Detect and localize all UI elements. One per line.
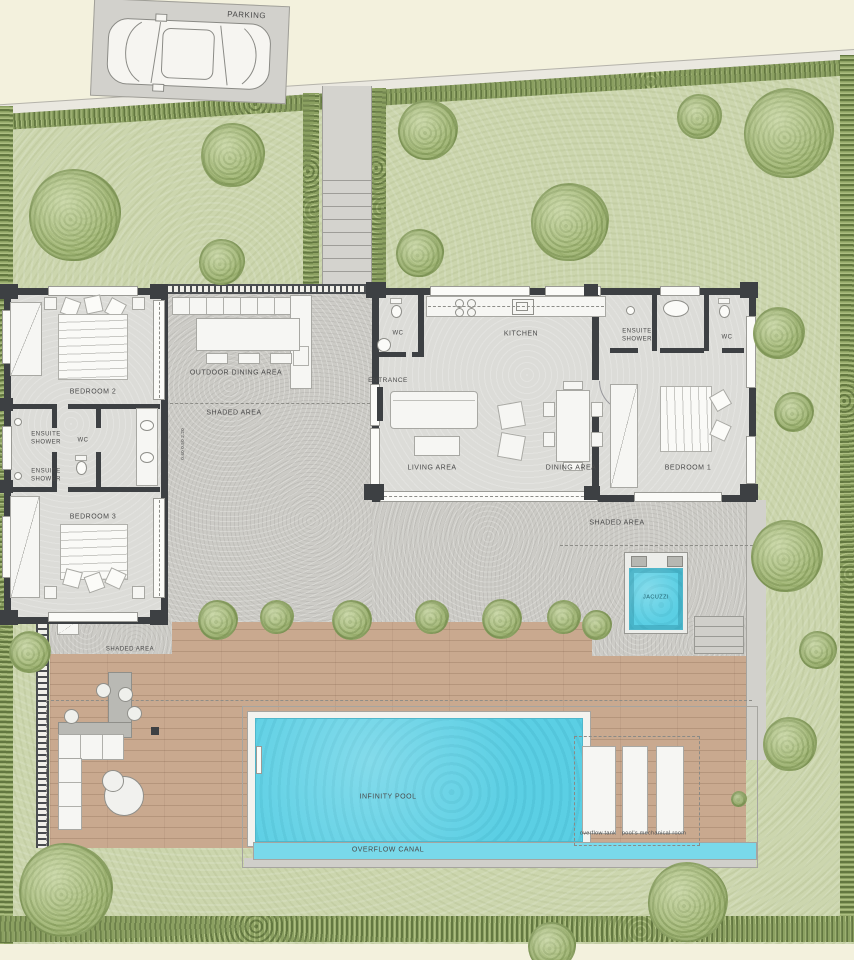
shaded-area-dash xyxy=(560,545,758,546)
armchair xyxy=(497,432,526,461)
shower-head xyxy=(14,418,22,426)
hedge-walkway-right xyxy=(372,88,386,288)
entrance-label: ENTRANCE xyxy=(368,377,408,385)
kitchen-label: KITCHEN xyxy=(504,331,538,340)
deck-dashed-line xyxy=(46,700,752,701)
partition xyxy=(9,404,53,409)
entrance-door-leaf xyxy=(377,387,383,421)
toilet-tank xyxy=(390,298,402,304)
toilet-tank xyxy=(718,298,730,304)
nightstand xyxy=(132,297,145,310)
stove-burner xyxy=(467,308,476,317)
bar-stool xyxy=(64,709,79,724)
window xyxy=(660,286,700,296)
jacuzzi-headrest xyxy=(667,556,683,567)
dining-area-label: DINING AREA xyxy=(546,465,597,474)
wc-label: WC xyxy=(393,330,404,338)
pillow xyxy=(83,294,103,314)
column xyxy=(740,484,758,500)
jacuzzi-label: JACUZZI xyxy=(643,595,669,602)
overflow-tank-label: overflow tank xyxy=(576,831,620,838)
living-area-label: LIVING AREA xyxy=(407,465,456,474)
outdoor-sofa-vertical xyxy=(58,758,82,830)
basin xyxy=(140,420,154,431)
window xyxy=(370,428,380,488)
nightstand xyxy=(132,586,145,599)
partition xyxy=(9,487,53,492)
chair xyxy=(238,353,260,364)
pool-ladder xyxy=(256,746,262,774)
basin xyxy=(140,452,154,463)
wc-label: WC xyxy=(78,437,89,445)
ensuite-shower-label: ENSUITE SHOWER xyxy=(613,329,661,344)
window xyxy=(48,612,138,622)
basin xyxy=(663,300,689,317)
partition xyxy=(96,452,101,492)
ensuite-shower-label: ENSUITE SHOWER xyxy=(23,432,69,447)
column xyxy=(740,282,758,298)
bed xyxy=(660,386,712,452)
entry-walkway xyxy=(322,86,372,170)
ensuite-shower-label: ENSUITE SHOWER xyxy=(23,469,69,484)
window xyxy=(2,426,12,470)
armchair xyxy=(497,401,526,430)
sliding-glass-dash xyxy=(384,496,594,497)
wardrobe xyxy=(10,496,40,598)
hedge-walkway-left xyxy=(303,93,319,289)
hedge-bottom xyxy=(0,916,854,942)
window xyxy=(634,492,722,502)
partition xyxy=(412,352,424,357)
chair xyxy=(563,381,583,390)
jacuzzi-headrest xyxy=(631,556,647,567)
chair xyxy=(591,432,603,447)
wardrobe xyxy=(10,302,42,376)
car-icon xyxy=(103,11,274,96)
partition xyxy=(96,404,101,428)
outdoor-sofa-horizontal xyxy=(58,734,124,760)
sliding-glass-dash xyxy=(159,500,160,596)
chair xyxy=(543,432,555,447)
partition xyxy=(660,348,704,353)
parking-label: PARKING xyxy=(227,10,266,22)
partition xyxy=(68,487,160,492)
shaded-area-label: SHADED AREA xyxy=(206,410,261,419)
entry-stairs xyxy=(322,168,372,296)
partition xyxy=(722,348,744,353)
floor-plan: PARKING xyxy=(0,0,854,960)
bar-stool xyxy=(127,706,142,721)
stove-burner xyxy=(467,299,476,308)
nightstand xyxy=(44,586,57,599)
window-dimension-note: 0.40 0.50 2.20 xyxy=(180,428,186,460)
chair xyxy=(206,353,228,364)
bedroom3-label: BEDROOM 3 xyxy=(70,514,117,523)
column xyxy=(366,282,386,298)
chair xyxy=(270,353,292,364)
wc-label: WC xyxy=(722,334,733,342)
sofa xyxy=(390,391,478,429)
deck-dashed-line-v xyxy=(46,700,47,846)
partition xyxy=(52,404,57,428)
column xyxy=(0,284,18,299)
wardrobe xyxy=(610,384,638,488)
pergola-post xyxy=(151,727,159,735)
hedge-right xyxy=(840,55,854,920)
sofa-back-line xyxy=(393,400,475,401)
nightstand xyxy=(44,297,57,310)
shaded-area-label: SHADED AREA xyxy=(106,646,154,654)
infinity-pool-label: INFINITY POOL xyxy=(360,794,417,803)
outdoor-counter-seats xyxy=(172,297,294,315)
chair xyxy=(591,402,603,417)
window xyxy=(746,436,756,484)
basin xyxy=(377,338,391,352)
bar-stool xyxy=(118,687,133,702)
coffee-table xyxy=(414,436,460,456)
bar-stool xyxy=(96,683,111,698)
pergola-edge xyxy=(168,284,372,294)
outdoor-dining-table xyxy=(196,318,300,351)
bed xyxy=(58,314,128,380)
column xyxy=(0,610,18,625)
column xyxy=(150,610,168,625)
kitchen-sink-basin xyxy=(516,302,528,311)
pool-mechanical-room-label: pool's mechanical room xyxy=(619,831,689,838)
partition xyxy=(418,295,424,357)
chair xyxy=(543,402,555,417)
round-table-small xyxy=(102,770,124,792)
column xyxy=(364,484,384,500)
partition xyxy=(374,352,406,357)
bedroom2-label: BEDROOM 2 xyxy=(70,389,117,398)
mechanical-dashed-outline xyxy=(574,736,700,846)
shaded-area-label: SHADED AREA xyxy=(589,520,644,529)
partition xyxy=(704,295,709,351)
window xyxy=(430,286,530,296)
bedroom1-label: BEDROOM 1 xyxy=(665,465,712,474)
window xyxy=(48,286,138,296)
overflow-canal-label: OVERFLOW CANAL xyxy=(352,847,424,856)
toilet-bowl xyxy=(719,305,730,318)
shaded-area-dash xyxy=(170,403,370,404)
toilet-bowl xyxy=(391,305,402,318)
infinity-pool xyxy=(255,718,583,842)
partition xyxy=(592,412,599,500)
sliding-glass-dash xyxy=(159,302,160,398)
stove-burner xyxy=(455,299,464,308)
jacuzzi-steps xyxy=(694,616,744,654)
shower-head xyxy=(626,306,635,315)
parking-pad: PARKING xyxy=(90,0,290,104)
stove-burner xyxy=(455,308,464,317)
partition xyxy=(610,348,638,353)
dining-table xyxy=(556,390,590,462)
outdoor-dining-label: OUTDOOR DINING AREA xyxy=(190,370,282,379)
column xyxy=(150,284,168,299)
shower-head xyxy=(14,472,22,480)
toilet-bowl xyxy=(76,461,87,475)
